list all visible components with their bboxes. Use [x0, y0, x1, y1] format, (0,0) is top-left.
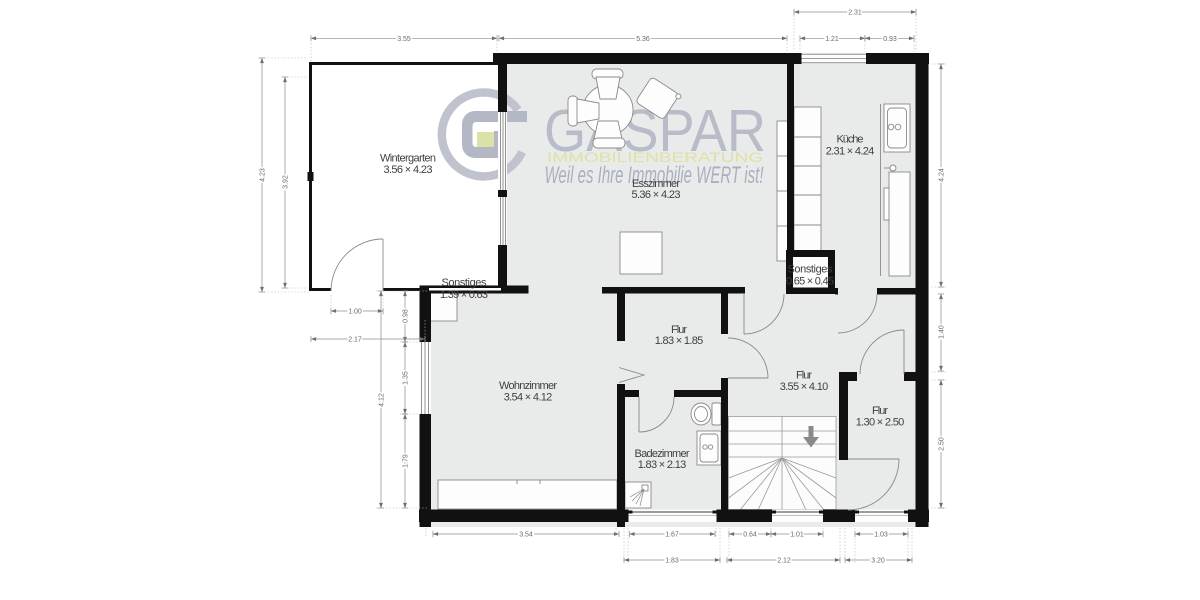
svg-text:3.92: 3.92	[283, 175, 290, 189]
svg-text:Badezimmer: Badezimmer	[635, 448, 690, 460]
svg-text:3.54 × 4.12: 3.54 × 4.12	[504, 391, 553, 403]
svg-text:1.39 × 0.63: 1.39 × 0.63	[440, 289, 488, 301]
svg-text:1.40: 1.40	[939, 325, 946, 339]
svg-text:1.01: 1.01	[790, 532, 804, 539]
svg-text:Flur: Flur	[872, 405, 888, 417]
svg-text:2.50: 2.50	[939, 437, 946, 451]
svg-text:1.83 × 2.13: 1.83 × 2.13	[638, 459, 687, 471]
svg-text:1.79: 1.79	[403, 454, 410, 468]
svg-text:0.64: 0.64	[743, 532, 757, 539]
svg-text:Flur: Flur	[796, 370, 812, 382]
svg-text:0.93: 0.93	[883, 36, 897, 43]
svg-text:1.83: 1.83	[665, 558, 679, 565]
svg-text:1.30 × 2.50: 1.30 × 2.50	[856, 417, 905, 429]
svg-text:1.21: 1.21	[825, 36, 839, 43]
svg-text:1.83 × 1.85: 1.83 × 1.85	[655, 335, 704, 347]
svg-text:2.12: 2.12	[777, 558, 791, 565]
svg-text:Sonstiges: Sonstiges	[442, 277, 488, 289]
svg-text:Küche: Küche	[837, 134, 864, 146]
svg-text:5.36: 5.36	[636, 36, 650, 43]
svg-text:4.12: 4.12	[379, 393, 386, 407]
svg-text:0.98: 0.98	[403, 309, 410, 323]
svg-text:5.36 × 4.23: 5.36 × 4.23	[632, 189, 681, 201]
svg-text:1.03: 1.03	[874, 532, 888, 539]
svg-text:4.23: 4.23	[260, 168, 267, 182]
svg-text:1.00: 1.00	[348, 309, 362, 316]
svg-text:1.67: 1.67	[665, 532, 679, 539]
svg-text:3.55: 3.55	[397, 36, 411, 43]
svg-text:3.54: 3.54	[519, 532, 533, 539]
svg-text:2.31: 2.31	[848, 10, 862, 17]
svg-text:1.35: 1.35	[403, 371, 410, 385]
svg-text:3.55 × 4.10: 3.55 × 4.10	[780, 381, 829, 393]
svg-text:4.24: 4.24	[939, 168, 946, 182]
svg-text:2.17: 2.17	[348, 337, 362, 344]
svg-text:Wohnzimmer: Wohnzimmer	[499, 380, 557, 392]
svg-text:3.20: 3.20	[871, 558, 885, 565]
svg-text:2.31 × 4.24: 2.31 × 4.24	[826, 146, 875, 158]
svg-text:Wintergarten: Wintergarten	[380, 153, 436, 165]
svg-text:3.56 × 4.23: 3.56 × 4.23	[384, 164, 433, 176]
svg-text:0.65 × 0.45: 0.65 × 0.45	[786, 276, 834, 288]
svg-text:Sonstiges: Sonstiges	[788, 264, 834, 276]
